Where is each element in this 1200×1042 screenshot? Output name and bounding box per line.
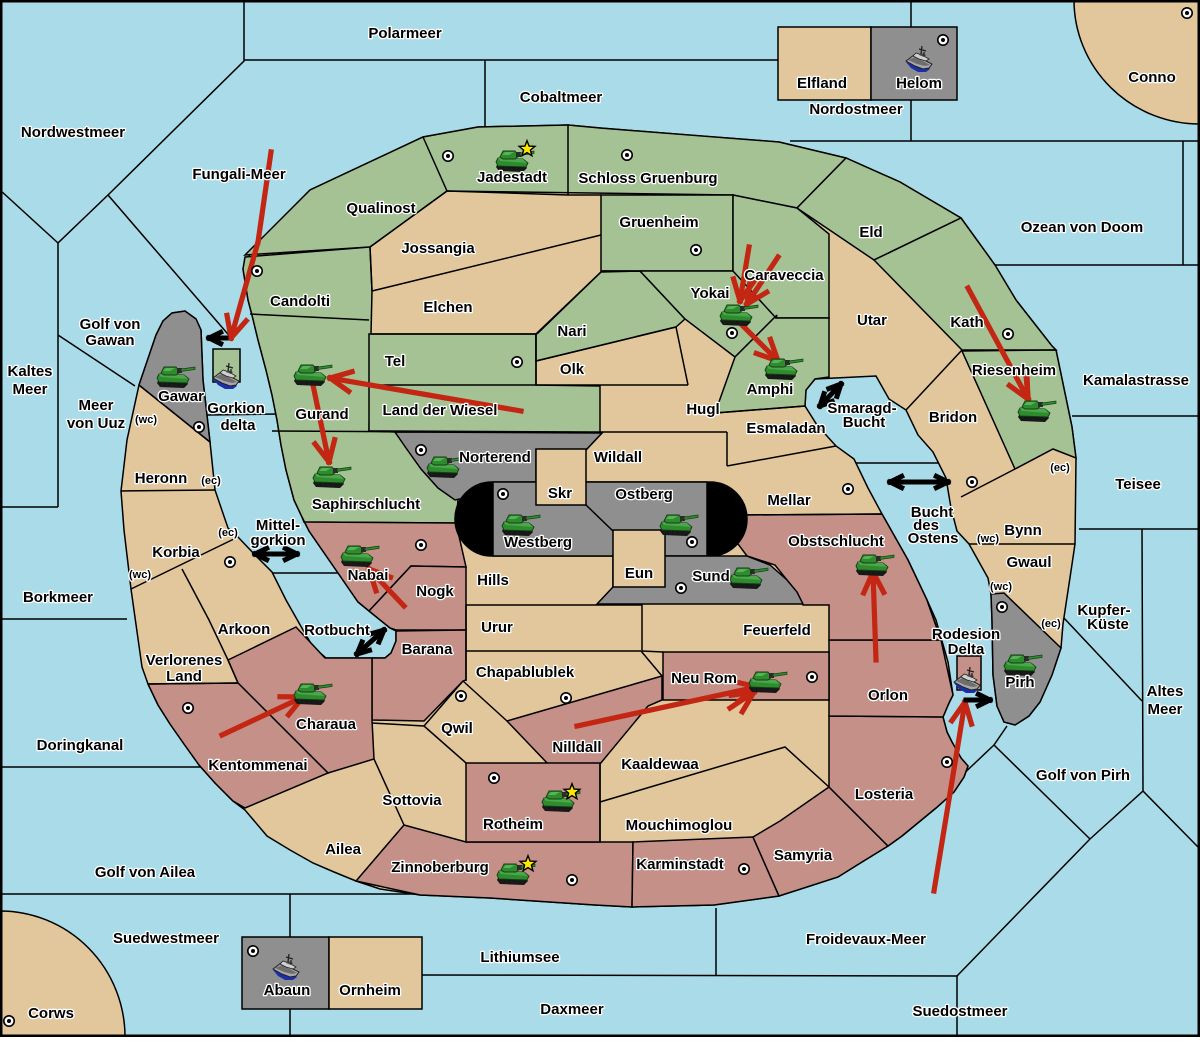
svg-text:Jossangia: Jossangia — [401, 240, 475, 257]
svg-text:Froidevaux-Meer: Froidevaux-Meer — [806, 931, 926, 948]
svg-text:Ozean von Doom: Ozean von Doom — [1021, 219, 1144, 236]
svg-text:(wc): (wc) — [135, 414, 157, 426]
svg-text:Arkoon: Arkoon — [218, 621, 271, 638]
svg-text:Golf von Pirh: Golf von Pirh — [1036, 767, 1130, 784]
svg-text:Jadestadt: Jadestadt — [477, 169, 547, 186]
svg-text:Orlon: Orlon — [868, 687, 908, 704]
svg-text:Verlorenes: Verlorenes — [146, 652, 223, 669]
svg-text:Charaua: Charaua — [296, 716, 357, 733]
svg-text:Tel: Tel — [385, 353, 406, 370]
svg-text:Qwil: Qwil — [441, 720, 473, 737]
svg-text:Norterend: Norterend — [459, 449, 531, 466]
svg-text:gorkion: gorkion — [251, 532, 306, 549]
svg-text:Küste: Küste — [1087, 616, 1129, 633]
svg-text:Ostens: Ostens — [908, 530, 959, 547]
svg-text:Ailea: Ailea — [325, 841, 362, 858]
svg-text:Gawar: Gawar — [158, 388, 204, 405]
svg-text:Bynn: Bynn — [1004, 522, 1042, 539]
svg-text:Lithiumsee: Lithiumsee — [480, 949, 559, 966]
svg-text:Fungali-Meer: Fungali-Meer — [192, 166, 286, 183]
svg-text:Heronn: Heronn — [135, 470, 188, 487]
svg-text:Nari: Nari — [557, 323, 586, 340]
svg-text:Samyria: Samyria — [774, 847, 833, 864]
svg-text:Eld: Eld — [859, 224, 882, 241]
svg-text:Land: Land — [166, 668, 202, 685]
svg-text:delta: delta — [220, 417, 256, 434]
svg-text:Elfland: Elfland — [797, 75, 847, 92]
svg-text:Gwaul: Gwaul — [1006, 554, 1051, 571]
svg-text:Hills: Hills — [477, 572, 509, 589]
svg-text:Korbia: Korbia — [152, 544, 200, 561]
svg-text:Amphi: Amphi — [747, 381, 794, 398]
svg-text:Golf von Ailea: Golf von Ailea — [95, 864, 196, 881]
svg-text:Losteria: Losteria — [855, 786, 914, 803]
svg-text:(ec): (ec) — [218, 527, 238, 539]
svg-text:(ec): (ec) — [1041, 618, 1061, 630]
svg-text:Delta: Delta — [948, 641, 985, 658]
svg-text:Mellar: Mellar — [767, 492, 811, 509]
svg-text:Gurand: Gurand — [295, 406, 348, 423]
svg-text:Helom: Helom — [896, 75, 942, 92]
svg-text:Sund: Sund — [692, 568, 730, 585]
svg-text:Kaaldewaa: Kaaldewaa — [621, 756, 699, 773]
svg-text:Hugl: Hugl — [686, 401, 719, 418]
svg-text:Urur: Urur — [481, 619, 513, 636]
svg-text:Teisee: Teisee — [1115, 476, 1161, 493]
svg-text:Daxmeer: Daxmeer — [540, 1001, 604, 1018]
svg-text:von Uuz: von Uuz — [67, 415, 125, 432]
svg-text:Bridon: Bridon — [929, 409, 977, 426]
svg-text:Suedwestmeer: Suedwestmeer — [113, 930, 219, 947]
svg-text:Nogk: Nogk — [416, 583, 454, 600]
svg-text:Meer: Meer — [78, 397, 113, 414]
svg-text:Yokai: Yokai — [691, 285, 730, 302]
svg-text:Meer: Meer — [12, 381, 47, 398]
svg-text:Ornheim: Ornheim — [339, 982, 401, 999]
svg-text:Nabai: Nabai — [348, 567, 389, 584]
svg-text:Olk: Olk — [560, 361, 585, 378]
svg-text:Gruenheim: Gruenheim — [619, 214, 698, 231]
svg-text:Pirh: Pirh — [1005, 674, 1034, 691]
svg-text:Suedostmeer: Suedostmeer — [912, 1003, 1007, 1020]
svg-text:Caraveccia: Caraveccia — [744, 267, 824, 284]
svg-text:Altes: Altes — [1147, 683, 1184, 700]
svg-text:Borkmeer: Borkmeer — [23, 589, 93, 606]
svg-text:Chapablublek: Chapablublek — [476, 664, 575, 681]
svg-text:Kamalastrasse: Kamalastrasse — [1083, 372, 1189, 389]
svg-text:(wc): (wc) — [990, 581, 1012, 593]
svg-text:Nordwestmeer: Nordwestmeer — [21, 124, 125, 141]
svg-text:Polarmeer: Polarmeer — [368, 25, 442, 42]
svg-text:Skr: Skr — [548, 485, 572, 502]
svg-text:Qualinost: Qualinost — [346, 200, 415, 217]
svg-text:Gawan: Gawan — [85, 332, 134, 349]
svg-text:Kaltes: Kaltes — [7, 363, 52, 380]
svg-text:(wc): (wc) — [129, 569, 151, 581]
svg-text:Wildall: Wildall — [594, 449, 642, 466]
svg-text:Zinnoberburg: Zinnoberburg — [391, 859, 489, 876]
svg-text:Sottovia: Sottovia — [382, 792, 442, 809]
svg-text:Riesenheim: Riesenheim — [972, 362, 1056, 379]
svg-text:(wc): (wc) — [977, 533, 999, 545]
svg-text:Nilldall: Nilldall — [552, 739, 601, 756]
svg-text:Schloss Gruenburg: Schloss Gruenburg — [578, 170, 717, 187]
svg-text:Saphirschlucht: Saphirschlucht — [312, 496, 420, 513]
svg-text:Obstschlucht: Obstschlucht — [788, 533, 884, 550]
svg-text:Utar: Utar — [857, 312, 887, 329]
svg-text:(ec): (ec) — [1050, 462, 1070, 474]
svg-text:Bucht: Bucht — [843, 414, 886, 431]
svg-text:Golf von: Golf von — [80, 316, 141, 333]
svg-text:Westberg: Westberg — [504, 534, 572, 551]
svg-text:Land der Wiesel: Land der Wiesel — [383, 402, 498, 419]
svg-text:Eun: Eun — [625, 565, 653, 582]
svg-text:Ostberg: Ostberg — [615, 486, 673, 503]
svg-text:Abaun: Abaun — [264, 982, 311, 999]
svg-text:(ec): (ec) — [201, 475, 221, 487]
svg-text:Esmaladan: Esmaladan — [746, 420, 825, 437]
svg-text:Mouchimoglou: Mouchimoglou — [626, 817, 733, 834]
svg-text:Kentommenai: Kentommenai — [208, 757, 307, 774]
svg-text:Candolti: Candolti — [270, 293, 330, 310]
svg-text:Nordostmeer: Nordostmeer — [809, 101, 903, 118]
svg-text:Neu Rom: Neu Rom — [671, 670, 737, 687]
svg-text:Rotheim: Rotheim — [483, 816, 543, 833]
svg-text:Karminstadt: Karminstadt — [636, 856, 724, 873]
svg-text:Doringkanal: Doringkanal — [37, 737, 124, 754]
svg-text:Conno: Conno — [1128, 69, 1175, 86]
svg-text:Corws: Corws — [28, 1005, 74, 1022]
svg-text:Barana: Barana — [402, 641, 454, 658]
svg-text:Feuerfeld: Feuerfeld — [743, 622, 811, 639]
svg-text:Elchen: Elchen — [423, 299, 472, 316]
svg-text:Gorkion: Gorkion — [207, 400, 265, 417]
svg-text:Meer: Meer — [1147, 701, 1182, 718]
svg-text:Rotbucht: Rotbucht — [304, 622, 370, 639]
svg-text:Kath: Kath — [950, 314, 983, 331]
svg-text:Cobaltmeer: Cobaltmeer — [520, 89, 603, 106]
